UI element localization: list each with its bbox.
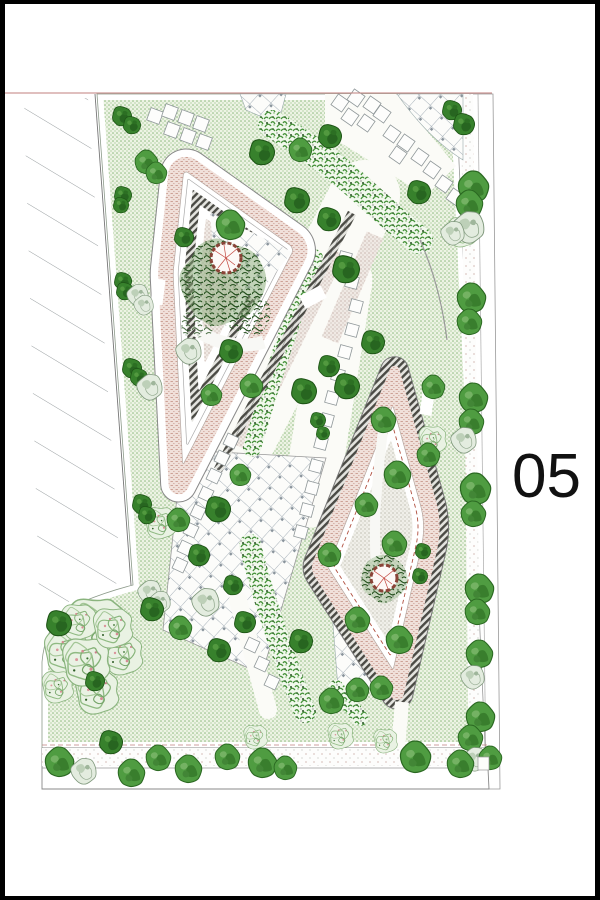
svg-text:05: 05 (512, 442, 581, 511)
